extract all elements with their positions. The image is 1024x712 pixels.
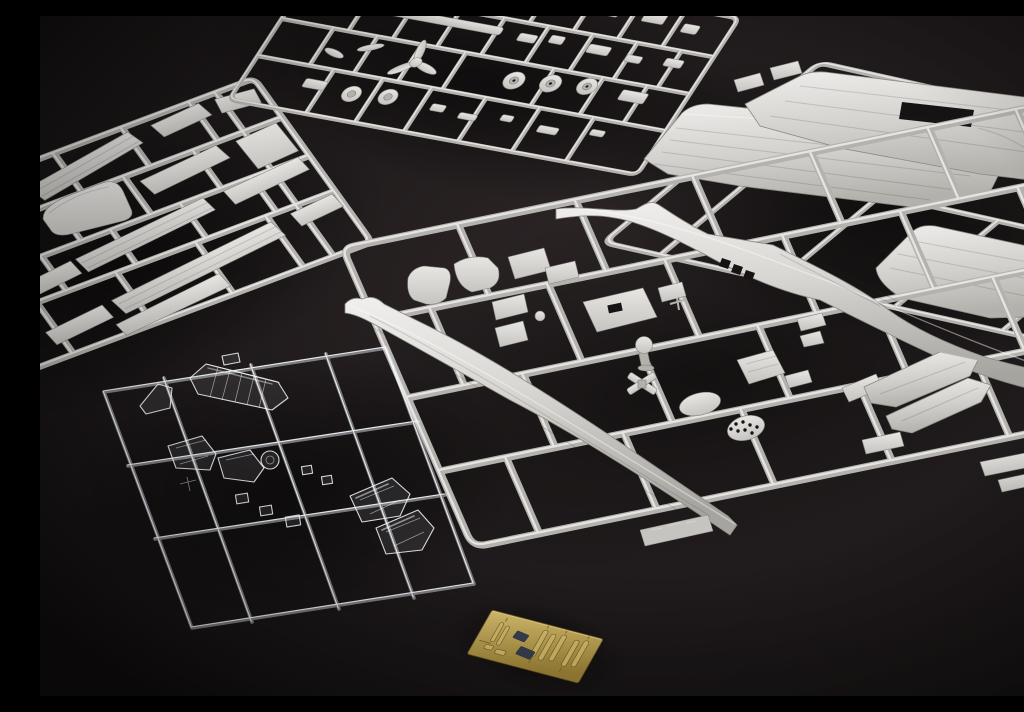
kit-photo	[40, 16, 1024, 696]
vignette-overlay	[40, 16, 1024, 696]
photo-frame	[40, 16, 1024, 696]
